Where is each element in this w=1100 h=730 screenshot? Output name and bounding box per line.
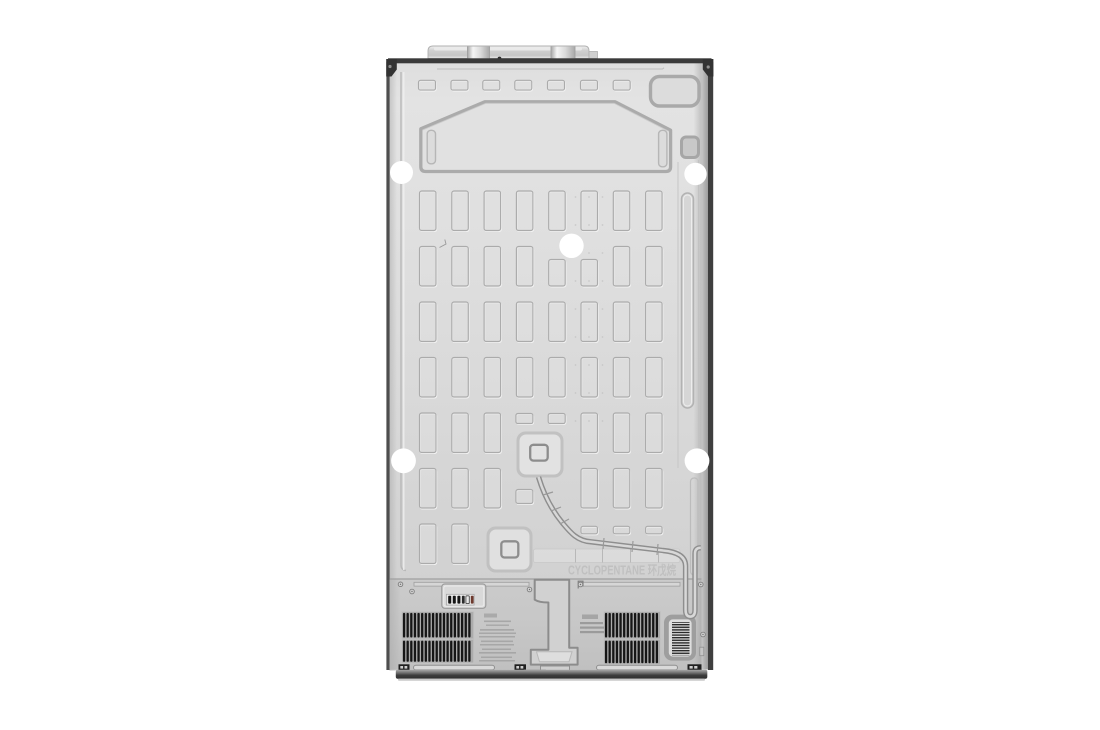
svg-text:CYCLOPENTANE 环戊烷: CYCLOPENTANE 环戊烷 (568, 563, 676, 578)
